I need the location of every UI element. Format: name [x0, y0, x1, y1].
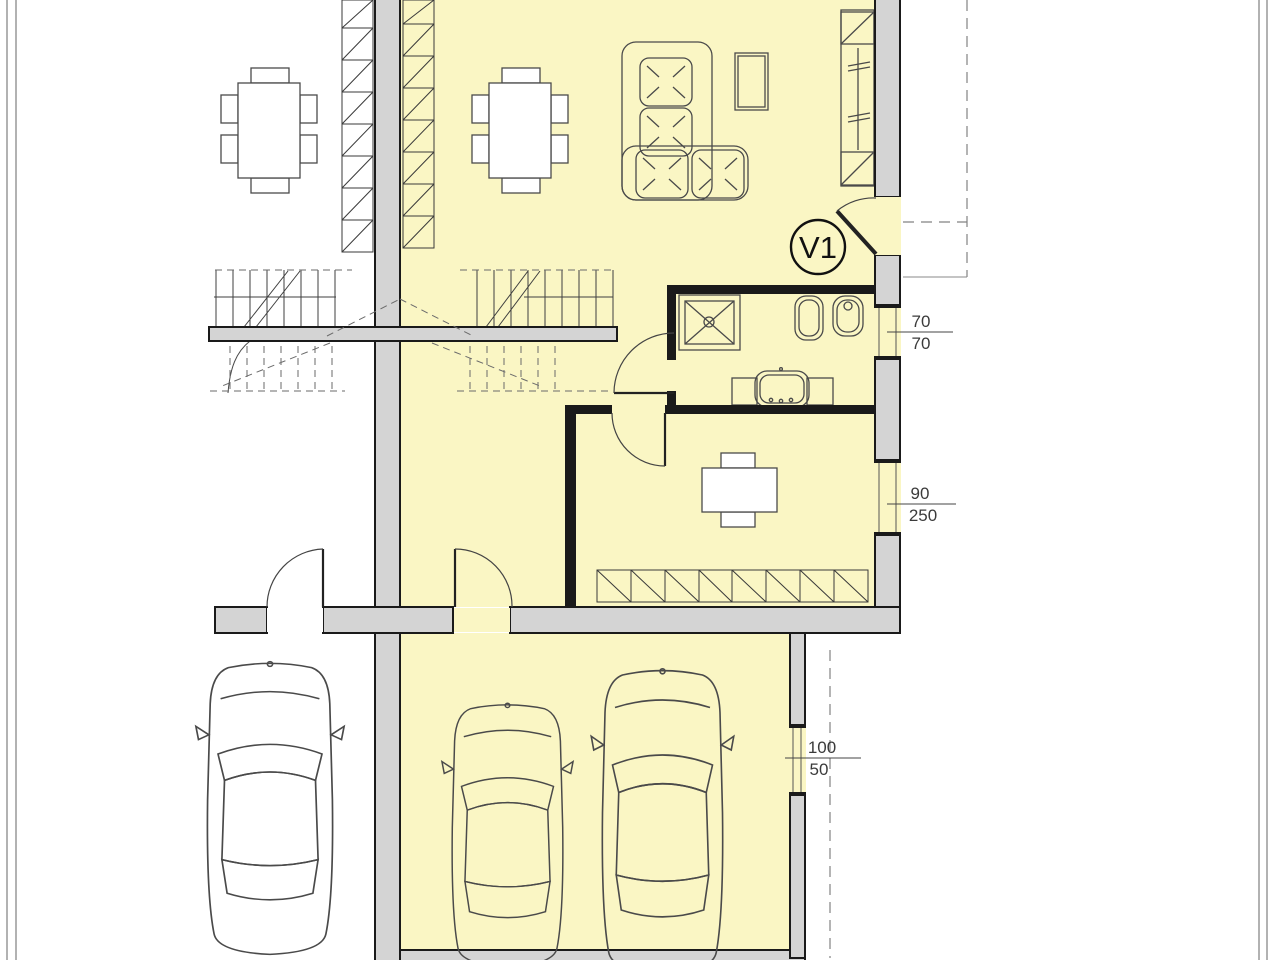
bathroom-west-wall [667, 285, 676, 360]
floor-plan-svg: V1 70 70 90 250 100 50 [0, 0, 1280, 960]
neighbor-garage-door [267, 549, 323, 607]
garage-right-wall [790, 633, 805, 728]
dim-bath-height-label: 70 [912, 334, 931, 353]
dim-bedroom-width-label: 90 [911, 484, 930, 503]
neighbor-door-opening [267, 608, 323, 632]
dim-bath-width-label: 70 [912, 312, 931, 331]
bedroom-west-wall [565, 405, 576, 607]
dining-table-neighbor [221, 68, 317, 193]
right-wall-top [875, 0, 900, 197]
stair-wall [209, 327, 617, 341]
entrance-label-text: V1 [799, 230, 837, 265]
south-wall [215, 607, 267, 633]
dim-bedroom-height-label: 250 [909, 506, 937, 525]
dim-garage-width-label: 100 [808, 738, 836, 757]
bedroom-window [874, 459, 901, 536]
garage-bottom-wall [400, 950, 805, 960]
cabinet-hatch-left [342, 0, 373, 252]
hallway-lower-area [400, 405, 576, 607]
bathroom-north-wall [668, 285, 875, 294]
car-neighbor [196, 662, 344, 955]
garage-area [400, 633, 790, 960]
floor-plan-page: V1 70 70 90 250 100 50 [0, 0, 1280, 960]
dim-garage-height-label: 50 [810, 760, 829, 779]
party-wall [375, 0, 400, 960]
garage-door-opening [454, 608, 510, 632]
garage-window [789, 724, 806, 796]
living-room-area [400, 0, 875, 327]
